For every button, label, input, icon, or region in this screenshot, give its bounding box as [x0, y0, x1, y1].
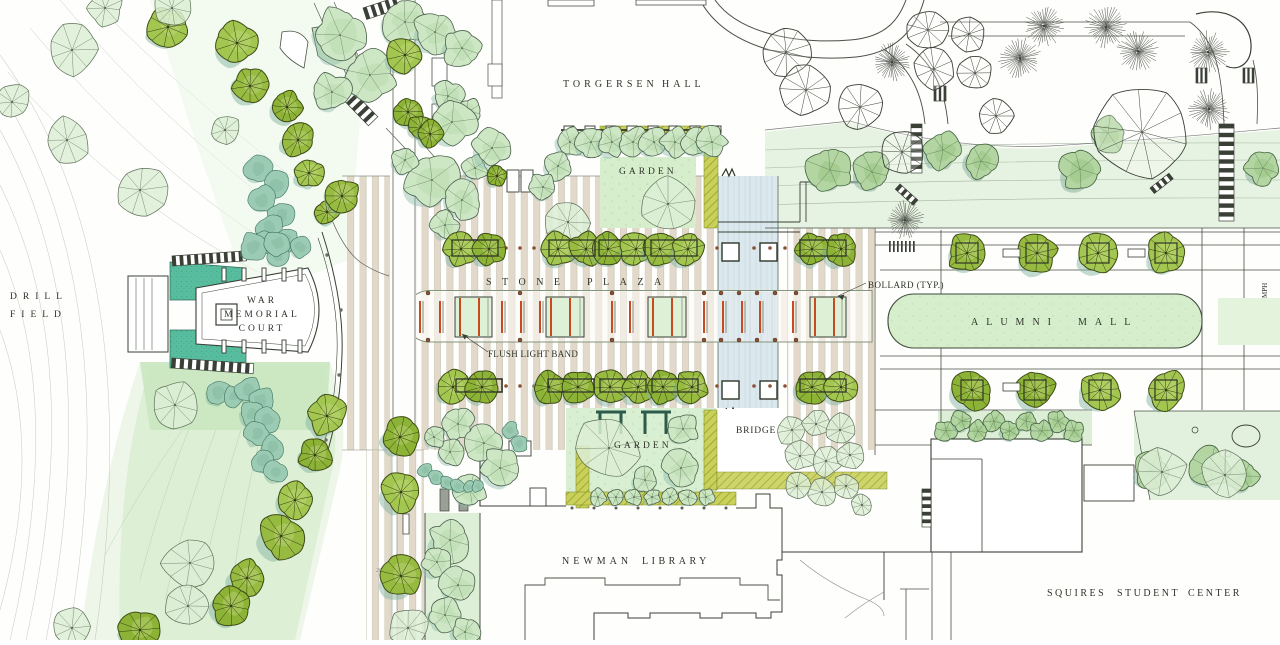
svg-text:BOLLARD (TYP.): BOLLARD (TYP.) [868, 280, 944, 290]
svg-text:LIBRARY: LIBRARY [642, 556, 710, 567]
svg-text:SQUIRES: SQUIRES [1047, 588, 1106, 599]
svg-text:FLUSH LIGHT BAND: FLUSH LIGHT BAND [488, 349, 578, 359]
svg-text:GARDEN: GARDEN [614, 441, 672, 451]
svg-text:BRIDGE: BRIDGE [736, 426, 776, 436]
svg-text:MPH: MPH [1261, 283, 1269, 298]
svg-text:COURT: COURT [239, 324, 286, 334]
svg-text:NEWMAN: NEWMAN [562, 556, 632, 567]
svg-text:HALL: HALL [662, 79, 705, 90]
svg-text:MALL: MALL [1078, 317, 1138, 328]
svg-text:STONE: STONE [486, 277, 571, 288]
svg-text:STUDENT: STUDENT [1117, 588, 1180, 599]
svg-text:DRILL: DRILL [10, 292, 68, 302]
svg-text:CENTER: CENTER [1188, 588, 1242, 599]
svg-text:MEMORIAL: MEMORIAL [224, 310, 300, 320]
svg-text:FIELD: FIELD [10, 310, 67, 320]
svg-text:ALUMNI: ALUMNI [971, 317, 1059, 328]
svg-text:WAR: WAR [247, 296, 277, 306]
svg-text:PLAZA: PLAZA [587, 277, 672, 288]
svg-text:GARDEN: GARDEN [619, 167, 677, 177]
svg-text:TORGERSEN: TORGERSEN [563, 79, 658, 90]
